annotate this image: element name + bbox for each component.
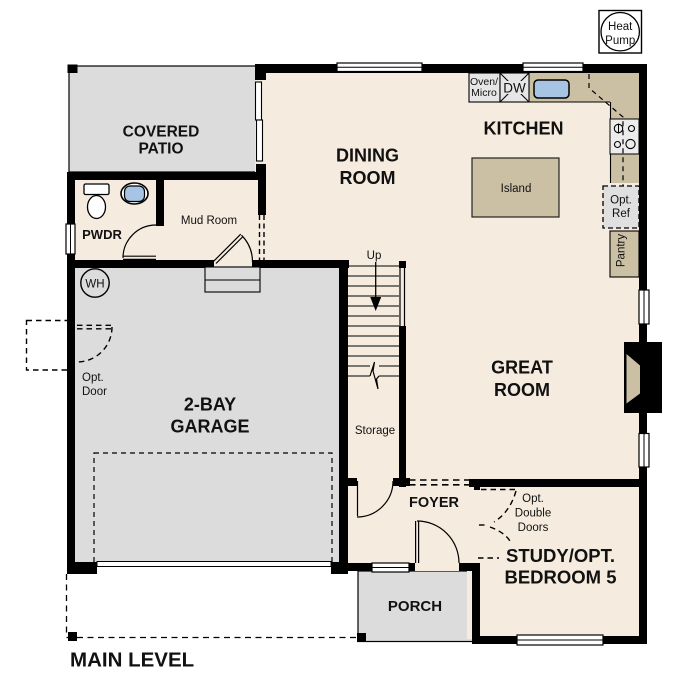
svg-text:Storage: Storage xyxy=(355,425,395,437)
svg-text:Door: Door xyxy=(82,386,107,398)
svg-text:MAIN LEVEL: MAIN LEVEL xyxy=(70,649,194,672)
svg-text:Mud Room: Mud Room xyxy=(181,215,237,227)
svg-text:PORCH: PORCH xyxy=(388,598,442,615)
svg-text:2-BAY: 2-BAY xyxy=(184,395,236,415)
svg-text:PATIO: PATIO xyxy=(138,141,183,158)
svg-text:Up: Up xyxy=(367,250,382,262)
svg-text:Double: Double xyxy=(515,508,551,520)
svg-text:KITCHEN: KITCHEN xyxy=(484,119,564,139)
svg-text:FOYER: FOYER xyxy=(409,495,459,511)
svg-text:COVERED: COVERED xyxy=(123,124,200,141)
svg-text:DINING: DINING xyxy=(336,146,399,166)
svg-text:WH: WH xyxy=(85,279,104,291)
svg-text:Micro: Micro xyxy=(471,87,497,99)
svg-text:ROOM: ROOM xyxy=(340,168,396,188)
svg-text:GREAT: GREAT xyxy=(491,358,553,378)
svg-text:Pump: Pump xyxy=(605,35,635,47)
svg-text:Opt.: Opt. xyxy=(610,195,632,207)
svg-text:Pantry: Pantry xyxy=(616,234,628,267)
svg-text:PWDR: PWDR xyxy=(82,227,122,242)
svg-text:ROOM: ROOM xyxy=(494,380,550,400)
svg-text:Opt.: Opt. xyxy=(522,493,544,505)
svg-text:Ref: Ref xyxy=(612,208,631,220)
svg-text:STUDY/OPT.: STUDY/OPT. xyxy=(506,545,615,566)
svg-text:Opt.: Opt. xyxy=(82,372,104,384)
svg-text:GARAGE: GARAGE xyxy=(170,417,249,437)
svg-text:Heat: Heat xyxy=(608,21,633,33)
svg-text:Island: Island xyxy=(501,183,532,195)
svg-text:Doors: Doors xyxy=(518,522,549,534)
svg-text:DW: DW xyxy=(503,81,526,96)
svg-text:BEDROOM 5: BEDROOM 5 xyxy=(504,567,616,588)
